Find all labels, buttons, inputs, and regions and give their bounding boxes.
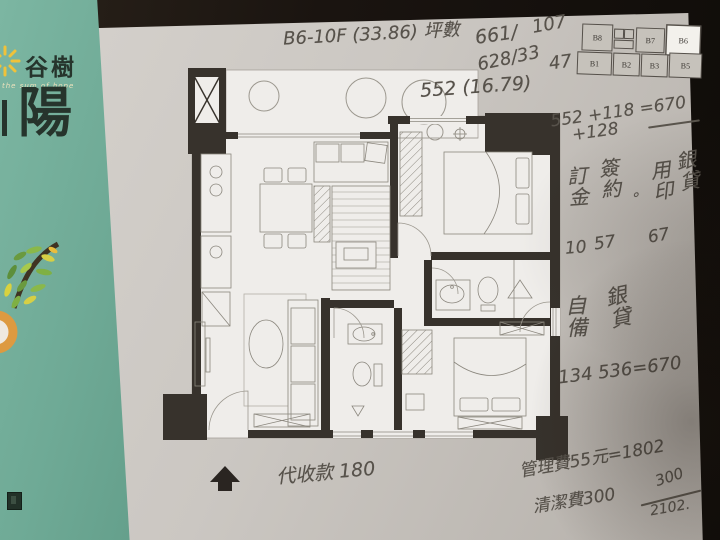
keyplan-label: B3: [650, 61, 660, 70]
keyplan-label: B2: [622, 60, 632, 69]
keyplan-label: B1: [590, 59, 600, 68]
keyplan-label: B6: [678, 36, 688, 45]
sun-logo-icon: [0, 44, 22, 78]
note-price-47: 47: [548, 51, 574, 75]
note-selffund-label: 自備: [565, 295, 591, 340]
photo-of-floorplan-document: 谷樹 the sum of hope 陽: [0, 0, 720, 540]
note-deposit-value: 10: [564, 237, 587, 259]
brand-name: 谷樹: [25, 48, 77, 82]
brochure-title-character: 陽: [18, 86, 72, 140]
note-zero-mark: 。: [633, 180, 648, 201]
entrance-arrow-icon: [210, 466, 240, 491]
note-seal-value: 67: [646, 224, 671, 247]
keyplan-diagram: B8 B7 B6 B1 B2 B3 B5: [573, 18, 709, 81]
note-contract-label: 簽約: [598, 157, 625, 201]
publisher-seal: [7, 492, 22, 510]
note-deposit-label: 訂金: [567, 165, 593, 208]
tree-branch-illustration: [0, 238, 64, 358]
keyplan-label: B8: [593, 33, 603, 42]
cut-character-stroke: [2, 100, 7, 136]
floorplan-drawing: [148, 56, 568, 491]
keyplan-label: B7: [645, 36, 655, 45]
note-contract-value: 57: [593, 232, 617, 255]
keyplan-label: B5: [681, 61, 691, 70]
